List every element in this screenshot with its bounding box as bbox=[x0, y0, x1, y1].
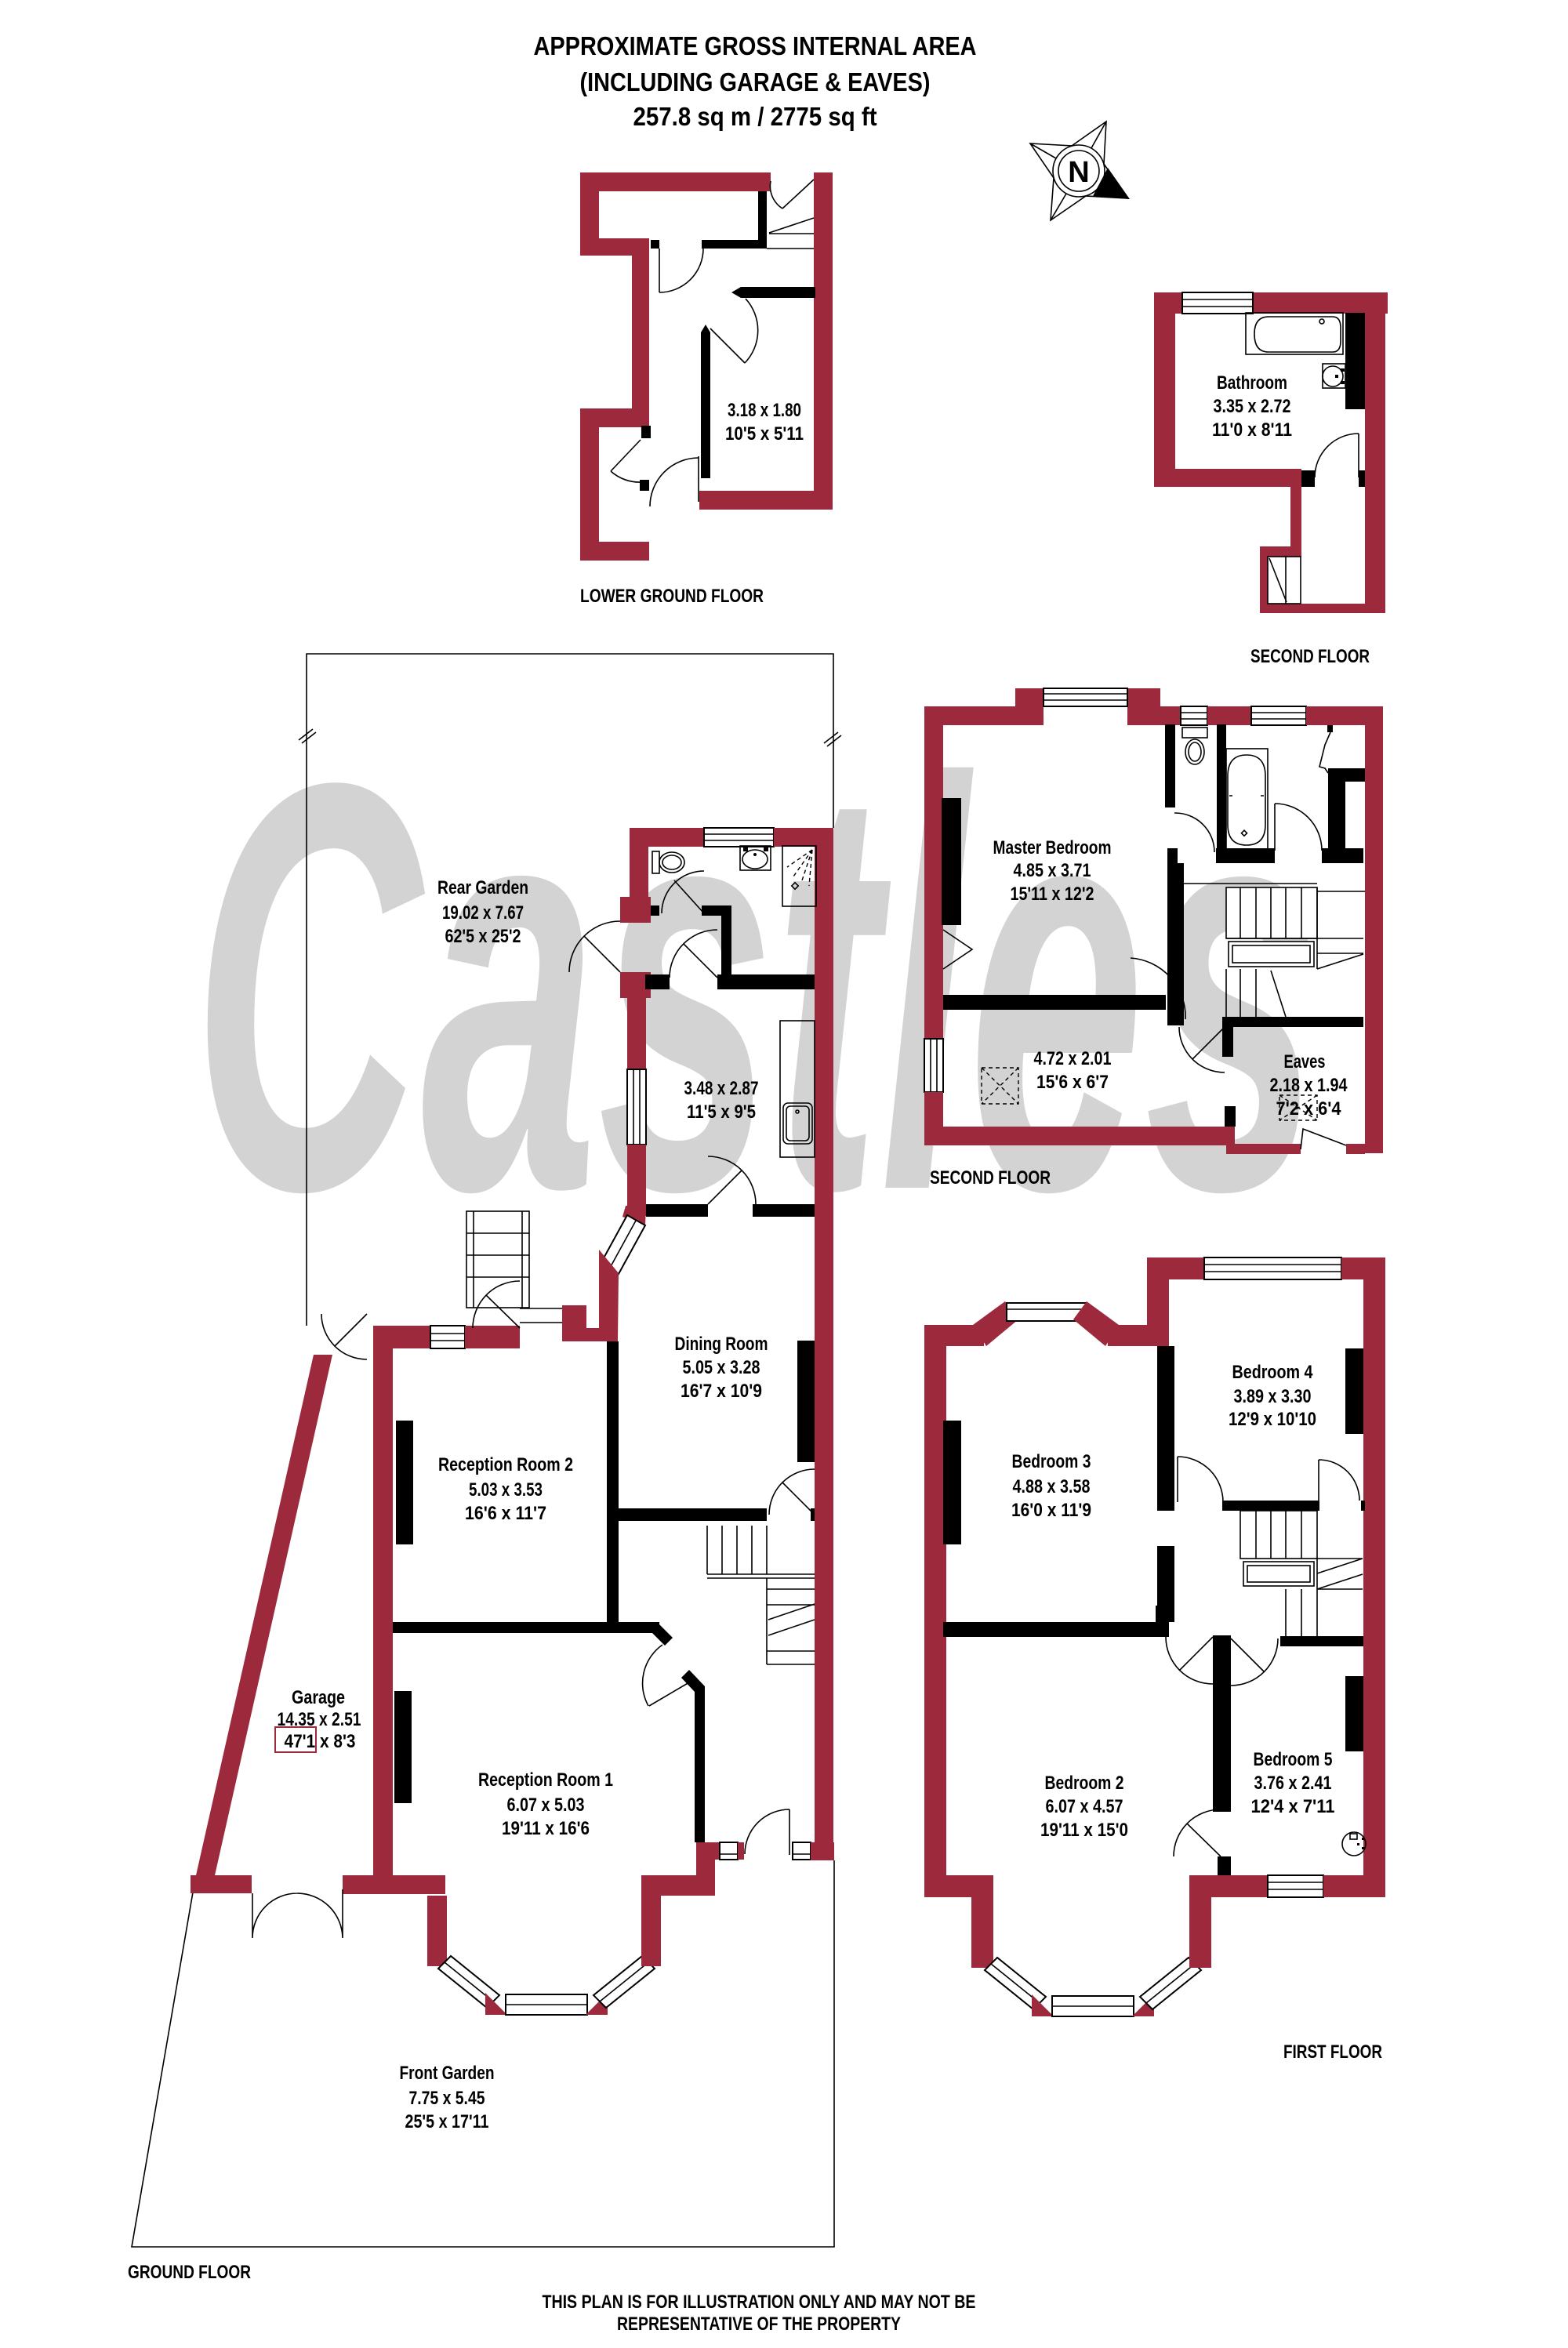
svg-text:6.07 x 5.03: 6.07 x 5.03 bbox=[507, 1795, 585, 1816]
svg-text:2.18 x 1.94: 2.18 x 1.94 bbox=[1270, 1075, 1348, 1096]
svg-text:SECOND FLOOR: SECOND FLOOR bbox=[1250, 646, 1370, 667]
svg-text:19'11 x 15'0: 19'11 x 15'0 bbox=[1040, 1820, 1128, 1841]
svg-text:N: N bbox=[1068, 156, 1089, 189]
svg-text:11'5 x 9'5: 11'5 x 9'5 bbox=[687, 1101, 756, 1123]
svg-text:Bedroom 5: Bedroom 5 bbox=[1254, 1749, 1333, 1770]
svg-text:62'5 x 25'2: 62'5 x 25'2 bbox=[445, 926, 521, 947]
svg-text:Dining Room: Dining Room bbox=[675, 1334, 768, 1355]
svg-text:15'11 x 12'2: 15'11 x 12'2 bbox=[1011, 884, 1094, 905]
svg-text:THIS PLAN IS FOR ILLUSTRATION: THIS PLAN IS FOR ILLUSTRATION ONLY AND M… bbox=[543, 2292, 976, 2313]
svg-text:16'0 x 11'9: 16'0 x 11'9 bbox=[1011, 1500, 1091, 1521]
svg-text:4.72 x 2.01: 4.72 x 2.01 bbox=[1034, 1048, 1112, 1069]
svg-text:3.18 x 1.80: 3.18 x 1.80 bbox=[728, 400, 801, 421]
svg-text:Eaves: Eaves bbox=[1284, 1051, 1326, 1072]
svg-text:19.02 x 7.67: 19.02 x 7.67 bbox=[442, 902, 524, 924]
svg-text:Reception Room 1: Reception Room 1 bbox=[478, 1769, 613, 1791]
svg-text:7.75 x 5.45: 7.75 x 5.45 bbox=[409, 2088, 485, 2109]
svg-text:APPROXIMATE GROSS INTERNAL ARE: APPROXIMATE GROSS INTERNAL AREA bbox=[534, 31, 977, 60]
svg-text:5.03 x 3.53: 5.03 x 3.53 bbox=[469, 1479, 543, 1501]
svg-text:FIRST FLOOR: FIRST FLOOR bbox=[1283, 2041, 1382, 2063]
svg-text:5.05 x 3.28: 5.05 x 3.28 bbox=[683, 1357, 760, 1378]
svg-text:Bedroom 3: Bedroom 3 bbox=[1012, 1451, 1091, 1472]
svg-text:3.76 x 2.41: 3.76 x 2.41 bbox=[1254, 1773, 1332, 1794]
svg-text:10'5 x 5'11: 10'5 x 5'11 bbox=[725, 423, 804, 445]
svg-text:15'6 x 6'7: 15'6 x 6'7 bbox=[1036, 1072, 1109, 1093]
svg-text:Garage: Garage bbox=[292, 1687, 345, 1708]
svg-text:25'5 x 17'11: 25'5 x 17'11 bbox=[405, 2111, 489, 2132]
svg-text:47'1 x 8'3: 47'1 x 8'3 bbox=[285, 1731, 356, 1752]
svg-text:6.07 x 4.57: 6.07 x 4.57 bbox=[1046, 1796, 1123, 1817]
svg-text:LOWER GROUND FLOOR: LOWER GROUND FLOOR bbox=[580, 586, 764, 607]
svg-text:Reception Room 2: Reception Room 2 bbox=[438, 1454, 573, 1475]
svg-text:3.89 x 3.30: 3.89 x 3.30 bbox=[1234, 1386, 1312, 1407]
svg-text:Bedroom 4: Bedroom 4 bbox=[1232, 1362, 1314, 1383]
svg-text:GROUND FLOOR: GROUND FLOOR bbox=[128, 2262, 251, 2283]
svg-text:12'9 x 10'10: 12'9 x 10'10 bbox=[1229, 1409, 1316, 1430]
svg-text:7'2 x 6'4: 7'2 x 6'4 bbox=[1276, 1098, 1342, 1120]
svg-text:Front Garden: Front Garden bbox=[400, 2063, 495, 2084]
svg-text:SECOND FLOOR: SECOND FLOOR bbox=[930, 1167, 1051, 1189]
svg-text:Bedroom 2: Bedroom 2 bbox=[1045, 1773, 1124, 1794]
svg-text:11'0 x 8'11: 11'0 x 8'11 bbox=[1212, 419, 1292, 441]
svg-text:16'6 x 11'7: 16'6 x 11'7 bbox=[465, 1503, 546, 1524]
svg-text:257.8 sq m / 2775 sq ft: 257.8 sq m / 2775 sq ft bbox=[633, 102, 877, 131]
svg-text:4.88 x 3.58: 4.88 x 3.58 bbox=[1013, 1476, 1091, 1497]
svg-text:Master Bedroom: Master Bedroom bbox=[993, 837, 1112, 858]
svg-text:REPRESENTATIVE OF THE PROPERTY: REPRESENTATIVE OF THE PROPERTY bbox=[617, 2314, 901, 2335]
svg-text:19'11 x 16'6: 19'11 x 16'6 bbox=[502, 1818, 590, 1839]
svg-text:3.48 x 2.87: 3.48 x 2.87 bbox=[684, 1078, 759, 1099]
svg-text:16'7 x 10'9: 16'7 x 10'9 bbox=[681, 1381, 762, 1402]
svg-text:(INCLUDING GARAGE & EAVES): (INCLUDING GARAGE & EAVES) bbox=[580, 67, 931, 96]
svg-text:12'4 x 7'11: 12'4 x 7'11 bbox=[1251, 1796, 1335, 1817]
svg-text:Rear Garden: Rear Garden bbox=[437, 877, 528, 898]
svg-text:3.35 x 2.72: 3.35 x 2.72 bbox=[1214, 396, 1291, 417]
svg-text:4.85 x 3.71: 4.85 x 3.71 bbox=[1014, 860, 1091, 881]
svg-text:Bathroom: Bathroom bbox=[1217, 372, 1287, 394]
